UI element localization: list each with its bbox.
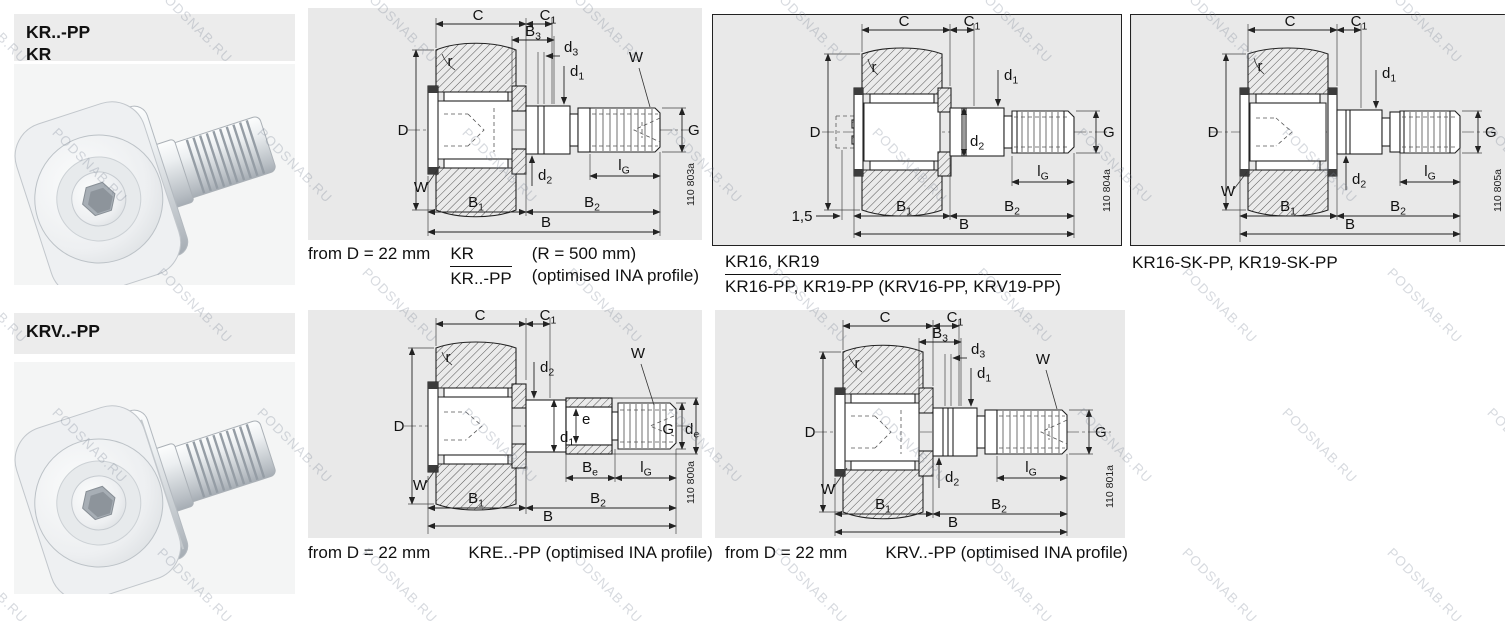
dim-label-B: B: [948, 514, 958, 531]
watermark-text: PODSNAB.RU: [1179, 265, 1260, 346]
figure-number: 110 801a: [1104, 465, 1116, 508]
kr-series-line1: KR..-PP: [26, 22, 283, 44]
dim-label-D: D: [805, 424, 816, 441]
krv-dimension-drawing: C C1 B3 d3 d1 W r D G W d2 lG B1 B2 B 11…: [715, 310, 1125, 538]
dim-label-D: D: [398, 122, 409, 139]
kr-caption-note-top: (R = 500 mm): [532, 243, 699, 265]
dim-label-r: r: [446, 349, 451, 366]
watermark-text: PODSNAB.RU: [1384, 265, 1465, 346]
watermark-text: PODSNAB.RU: [1279, 405, 1360, 486]
dim-label-r: r: [855, 355, 860, 372]
kr-dimension-drawing: C C1 B3 d3 d1 W r D G W d2 lG B1 B2 B 11…: [308, 8, 702, 240]
dim-label-B: B: [543, 508, 553, 525]
dim-label-B: B: [541, 214, 551, 231]
kre-dimension-drawing-panel: C C1 r d2 W e D d1 G de W Be lG B1 B2 B …: [308, 310, 702, 543]
krv-caption-prefix: from D = 22 mm: [725, 542, 847, 564]
kr-bearing-illustration: [14, 64, 295, 285]
dim-label-G: G: [662, 421, 674, 438]
watermark-text: PODSNAB.RU: [1484, 405, 1505, 486]
kr16-caption: KR16, KR19 KR16-PP, KR19-PP (KRV16-PP, K…: [725, 251, 1061, 298]
kr16sk-caption-text: KR16-SK-PP, KR19-SK-PP: [1132, 252, 1338, 274]
kr-product-photo: [14, 64, 295, 290]
kr16-dimension-drawing-panel: C C1 r d1 D G d2 lG 1,5 B1 B2 B 110 804a: [712, 14, 1122, 251]
dim-label-G: G: [1095, 424, 1107, 441]
dim-label-D: D: [394, 418, 405, 435]
kr-caption: from D = 22 mm KR KR..-PP (R = 500 mm) (…: [308, 243, 699, 290]
dim-label-recess-depth: 1,5: [792, 208, 813, 225]
dim-label-W-top: W: [629, 49, 644, 66]
dim-label-B: B: [1345, 216, 1355, 233]
watermark-text: PODSNAB.RU: [1384, 545, 1465, 626]
dim-label-r: r: [448, 53, 453, 70]
dim-label-C: C: [473, 8, 484, 24]
catalog-page: { "watermark": { "text": "PODSNAB.RU" },…: [0, 0, 1505, 594]
kr16sk-dimension-drawing-panel: C C1 r d1 D G W d2 lG B1 B2 B 110 805a: [1130, 14, 1505, 251]
figure-number: 110 804a: [1101, 169, 1113, 212]
krv-bearing-illustration: [14, 362, 295, 594]
dim-label-W-top: W: [1036, 351, 1051, 368]
dim-label-r: r: [1258, 58, 1263, 75]
dim-label-W-bottom: W: [1221, 183, 1236, 200]
dim-label-C: C: [1285, 14, 1296, 30]
watermark-text: PODSNAB.RU: [1179, 545, 1260, 626]
kr-designation-bottom: KR..-PP: [450, 267, 511, 290]
kr16-designation-bottom: KR16-PP, KR19-PP (KRV16-PP, KRV19-PP): [725, 275, 1061, 298]
krv-product-photo: [14, 362, 295, 599]
kre-dimension-drawing: C C1 r d2 W e D d1 G de W Be lG B1 B2 B …: [308, 310, 702, 538]
krv-series-label: KRV..-PP: [14, 313, 295, 354]
kr16-designation-fraction: KR16, KR19 KR16-PP, KR19-PP (KRV16-PP, K…: [725, 251, 1061, 298]
kr-series-line2: KR: [26, 44, 283, 66]
kr-caption-note-bottom: (optimised INA profile): [532, 265, 699, 287]
dim-label-D: D: [1208, 124, 1219, 141]
kr16sk-caption: KR16-SK-PP, KR19-SK-PP: [1132, 252, 1338, 274]
kr16sk-dimension-drawing: C C1 r d1 D G W d2 lG B1 B2 B 110 805a: [1130, 14, 1505, 246]
dim-label-B: B: [959, 216, 969, 233]
dim-label-W-bottom: W: [821, 481, 836, 498]
krv-caption: from D = 22 mm KRV..-PP (optimised INA p…: [725, 542, 1128, 564]
krv-caption-text: KRV..-PP (optimised INA profile): [885, 542, 1128, 564]
dim-label-r: r: [872, 59, 877, 76]
kr-dimension-drawing-panel: C C1 B3 d3 d1 W r D G W d2 lG B1 B2 B 11…: [308, 8, 702, 245]
krv-dimension-drawing-panel: C C1 B3 d3 d1 W r D G W d2 lG B1 B2 B 11…: [715, 310, 1125, 543]
dim-label-D: D: [810, 124, 821, 141]
dim-label-e: e: [582, 411, 590, 428]
dim-label-G: G: [1485, 124, 1497, 141]
dim-label-G: G: [688, 122, 700, 139]
kr-designation-top: KR: [450, 243, 511, 267]
kr-series-label: KR..-PP KR: [14, 14, 295, 61]
krv-series-line1: KRV..-PP: [26, 321, 283, 343]
figure-number: 110 803a: [685, 163, 697, 206]
figure-number: 110 805a: [1492, 169, 1504, 212]
kre-caption-text: KRE..-PP (optimised INA profile): [468, 542, 712, 564]
kr-designation-fraction: KR KR..-PP: [450, 243, 511, 290]
dim-label-W-top: W: [631, 345, 646, 362]
dim-label-C: C: [475, 310, 486, 324]
kr16-designation-top: KR16, KR19: [725, 251, 1061, 275]
figure-number: 110 800a: [685, 461, 697, 504]
dim-label-W-bottom: W: [413, 477, 428, 494]
dim-label-G: G: [1103, 124, 1115, 141]
dim-label-C: C: [899, 14, 910, 30]
kr-caption-notes: (R = 500 mm) (optimised INA profile): [532, 243, 699, 287]
kr16-dimension-drawing: C C1 r d1 D G d2 lG 1,5 B1 B2 B 110 804a: [712, 14, 1122, 246]
kr-caption-prefix: from D = 22 mm: [308, 243, 430, 265]
dim-label-W-bottom: W: [414, 179, 429, 196]
dim-label-C: C: [880, 310, 891, 326]
kre-caption-prefix: from D = 22 mm: [308, 542, 430, 564]
kre-caption: from D = 22 mm KRE..-PP (optimised INA p…: [308, 542, 713, 564]
